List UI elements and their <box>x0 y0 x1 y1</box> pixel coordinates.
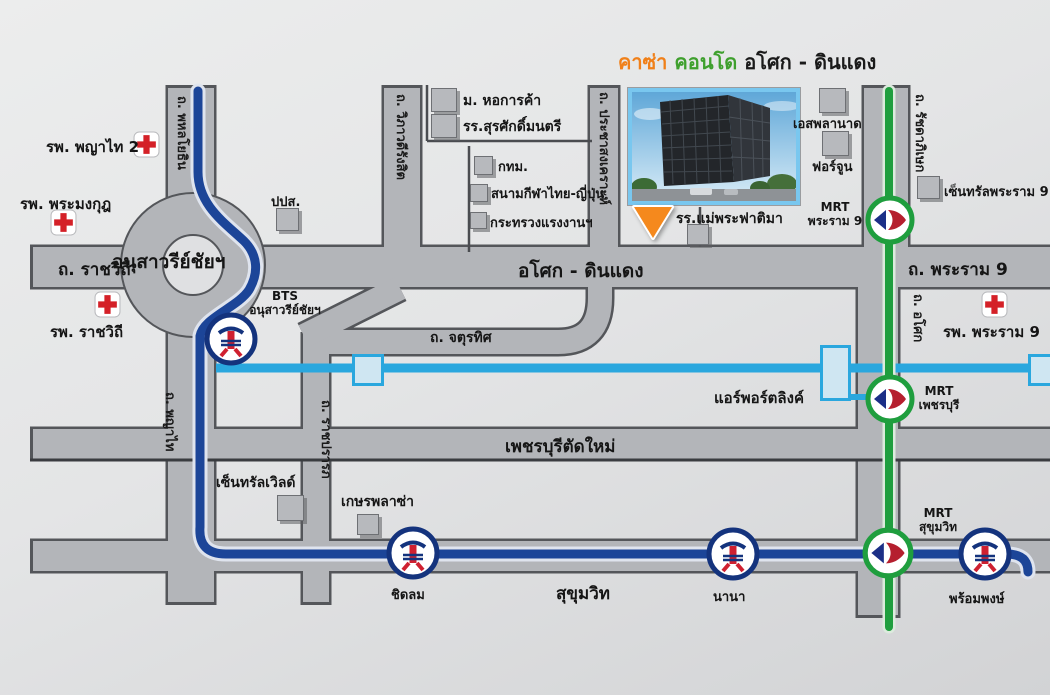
road-label-ratchaprarop: ถ. ราชปรารภ <box>316 400 337 479</box>
ministry-of-labour-label: กระทรวงแรงงานฯ <box>490 212 593 233</box>
mrt-logo-rama9 <box>864 194 916 246</box>
bts-logo-victory-monument <box>203 311 259 367</box>
airport-link-station-box <box>352 354 384 386</box>
bts-chidlom-label: ชิดลม <box>391 584 425 605</box>
road-label-sukhumvit: สุขุมวิท <box>556 580 610 607</box>
mrt-sukhumvit-label: MRT สุขุมวิท <box>907 507 969 535</box>
central-rama9-box <box>917 176 940 199</box>
bts-logo-nana <box>705 526 761 582</box>
condo-photo <box>628 88 800 205</box>
oncb-label: ปปส. <box>271 191 300 212</box>
hospital-rama9-label: รพ. พระราม 9 <box>943 320 1040 344</box>
bts-victory-name: อนุสาวรีย์ชัยฯ <box>249 303 321 317</box>
bts-victory-line: BTS <box>272 289 298 303</box>
mrt-rama9-line: MRT <box>821 200 850 214</box>
central-rama9-label: เซ็นทรัลพระราม 9 <box>944 181 1049 202</box>
fortune-label: ฟอร์จูน <box>812 156 853 177</box>
road-label-vibhavadi: ถ. วิภาวดีรังสิต <box>391 94 412 180</box>
surasakmontree-label: รร.สุรศักดิ์มนตรี <box>463 116 561 138</box>
hospital-phyathai2-label: รพ. พญาไท 2 <box>46 135 139 159</box>
road-label-chaturathit: ถ. จตุรทิศ <box>430 327 492 349</box>
central-world-label: เซ็นทรัลเวิลด์ <box>216 472 296 494</box>
condo-title: คาซ่าคอนโดอโศก - ดินแดง <box>618 46 876 78</box>
gaysorn-plaza-box <box>357 514 379 535</box>
mrt-phetchaburi-line: MRT <box>925 384 954 398</box>
bts-logo-chidlom <box>385 525 441 581</box>
ministry-of-labour-box <box>470 212 487 229</box>
esplanade-box <box>819 88 846 113</box>
road-label-victory-monument: อนุสาวรีย์ชัยฯ <box>112 247 225 277</box>
bts-phromphong-label: พร้อมพงษ์ <box>949 588 1004 609</box>
road-label-ratchadaphisek: ถ. รัชดาภิเษก <box>910 94 931 172</box>
utcc-box <box>431 88 457 112</box>
road-label-phahonyothin: ถ. พหลโยธิน <box>172 96 193 170</box>
red-cross-icon <box>981 291 1008 318</box>
red-cross-icon <box>94 291 121 318</box>
utcc-label: ม. หอการค้า <box>463 90 541 112</box>
road-label-asoke-dindaeng: อโศก - ดินแดง <box>518 256 644 286</box>
bma-box <box>474 156 493 175</box>
road-label-asoke: ถ. อโศก <box>908 294 929 342</box>
bangkok-location-map: คาซ่าคอนโดอโศก - ดินแดง <box>0 0 1050 695</box>
bts-nana-label: นานา <box>713 586 745 607</box>
fatima-school-label: รร.แม่พระฟาติมา <box>676 208 783 230</box>
hospital-rajavithi-label: รพ. ราชวิถี <box>50 320 123 344</box>
road-label-rama9: ถ. พระราม 9 <box>908 256 1008 283</box>
condo-building-illustration <box>632 92 796 201</box>
mrt-sukhumvit-line: MRT <box>924 506 953 520</box>
bts-victory-label: BTS อนุสาวรีย์ชัยฯ <box>247 290 323 318</box>
mrt-sukhumvit-name: สุขุมวิท <box>919 520 957 534</box>
condo-brand: คาซ่า <box>618 50 667 74</box>
hospital-phramongkut-label: รพ. พระมงกุฎ <box>20 192 111 216</box>
thai-japan-stadium-box <box>470 184 488 202</box>
label-airport-link: แอร์พอร์ตลิงค์ <box>714 386 804 410</box>
airport-link-station-box-right <box>1028 354 1050 386</box>
esplanade-label: เอสพลานาด <box>793 113 862 134</box>
mrt-phetchaburi-name: เพชรบุรี <box>919 398 960 412</box>
condo-location-marker-icon <box>630 204 676 242</box>
mrt-rama9-name: พระราม 9 <box>808 214 862 228</box>
condo-word: คอนโด <box>674 50 737 74</box>
mrt-rama9-label: MRT พระราม 9 <box>802 201 868 229</box>
condo-location: อโศก - ดินแดง <box>744 50 876 74</box>
airport-link-makkasan-station-box <box>820 345 851 401</box>
thai-japan-stadium-label: สนามกีฬาไทย-ญี่ปุ่น <box>491 183 604 204</box>
central-world-box <box>277 495 304 521</box>
fortune-box <box>822 131 849 156</box>
gaysorn-plaza-label: เกษรพลาซ่า <box>341 491 414 513</box>
mrt-phetchaburi-label: MRT เพชรบุรี <box>908 385 970 413</box>
surasakmontree-box <box>431 114 457 138</box>
road-label-phetchaburi: เพชรบุรีตัดใหม่ <box>505 433 615 460</box>
road-label-phayathai: ถ. พญาไท <box>160 392 181 451</box>
bma-label: กทม. <box>498 156 528 177</box>
